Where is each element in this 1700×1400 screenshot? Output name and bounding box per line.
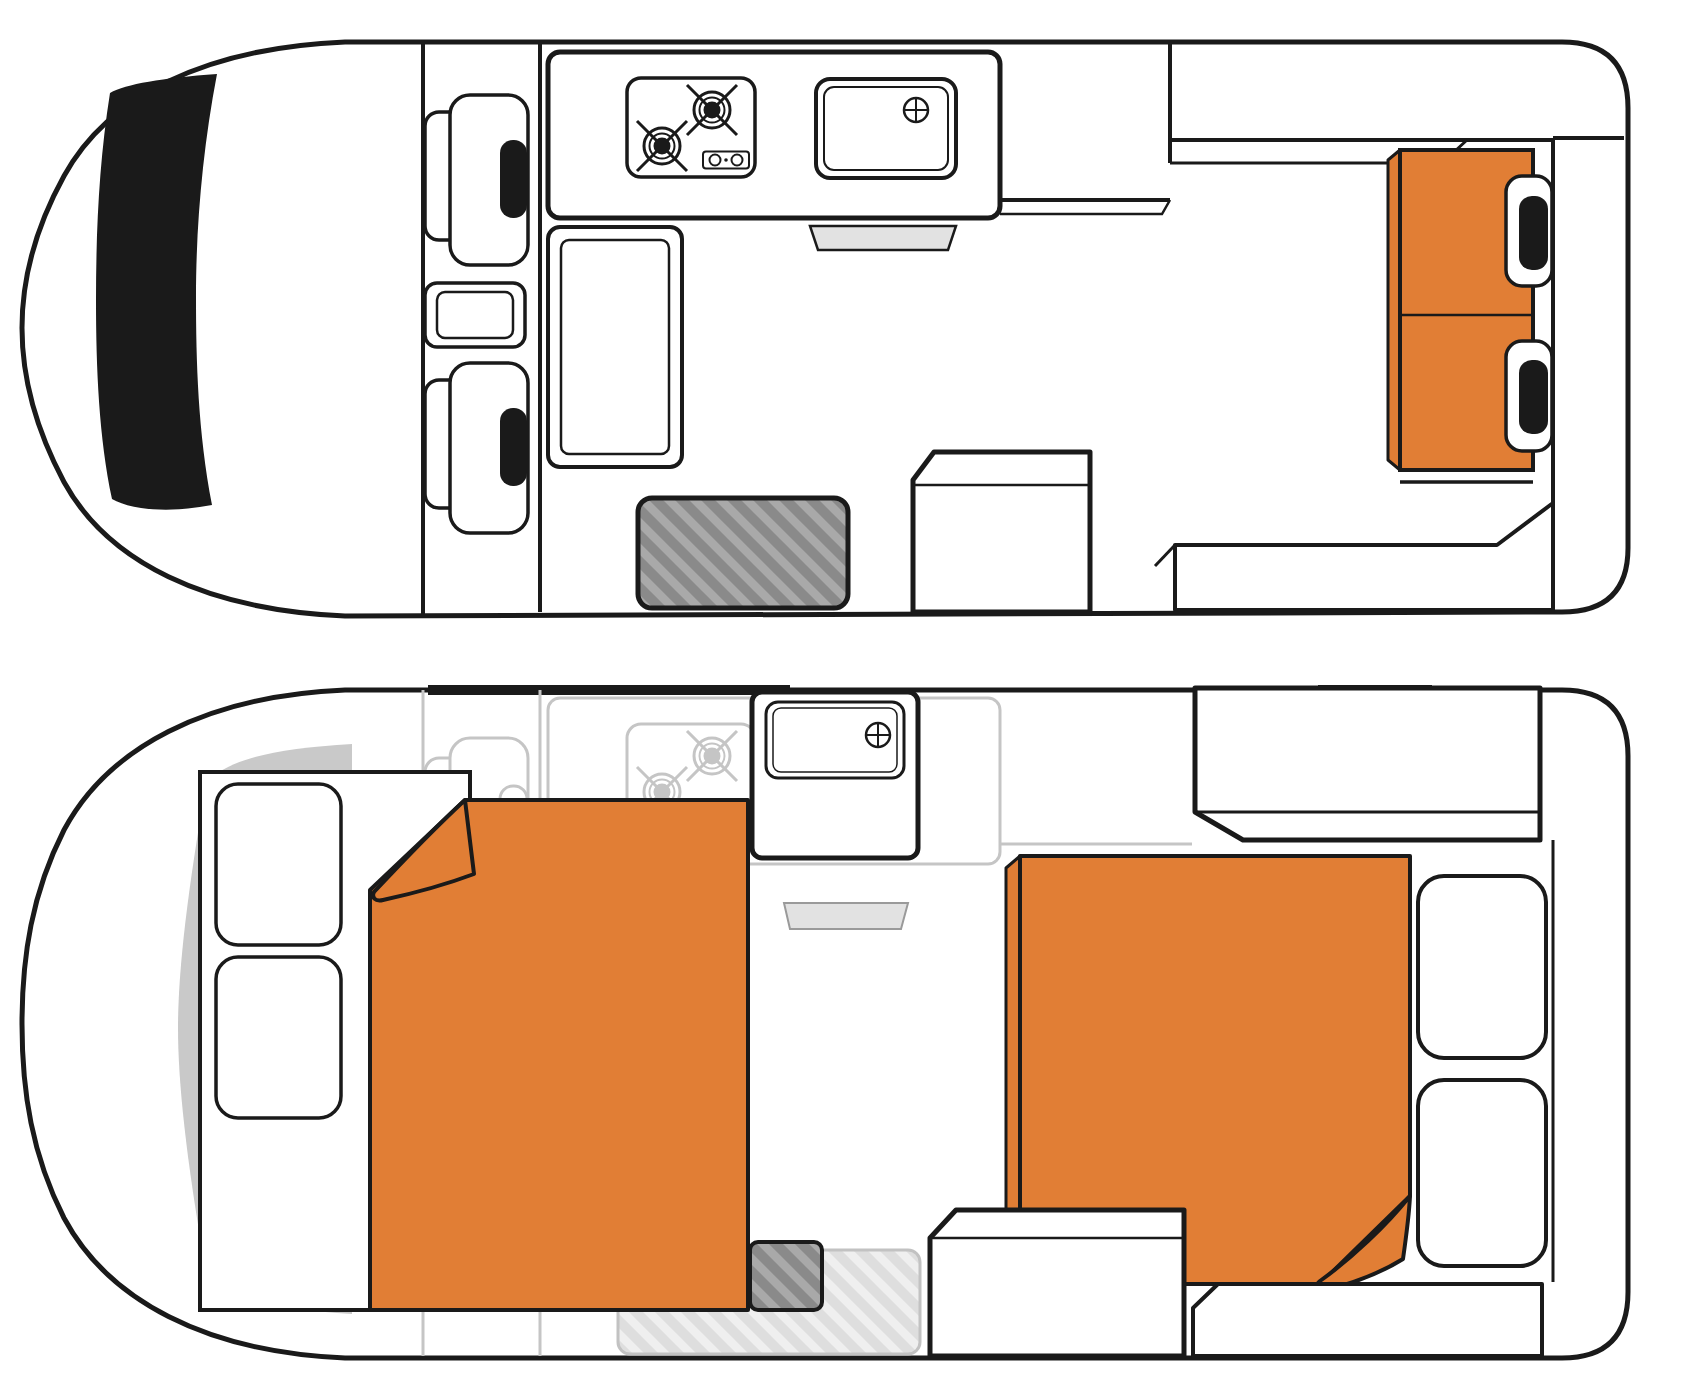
night-floorplan bbox=[22, 685, 1628, 1358]
campervan-floorplans bbox=[0, 0, 1700, 1400]
wardrobe-cabinet bbox=[548, 227, 682, 467]
stove-burner-icon bbox=[687, 85, 737, 135]
pillow bbox=[216, 957, 341, 1118]
sink-unit bbox=[752, 692, 918, 858]
cutlery-tray bbox=[810, 226, 956, 250]
kitchen-unit bbox=[548, 52, 1000, 218]
rear-seat-cushion bbox=[1418, 876, 1546, 1058]
sink bbox=[816, 79, 956, 178]
day-floorplan bbox=[22, 42, 1628, 616]
drain-icon bbox=[866, 723, 890, 747]
entry-step bbox=[638, 498, 848, 608]
front-double-bed bbox=[370, 800, 748, 1310]
entry-step bbox=[750, 1242, 822, 1310]
rear-seat-cushion bbox=[1418, 1080, 1546, 1266]
wall-section bbox=[428, 685, 790, 695]
bench-headrest bbox=[1519, 360, 1548, 434]
passenger-seat bbox=[425, 363, 528, 533]
cutlery-tray bbox=[784, 903, 908, 929]
rear-overhead-cabinet bbox=[1195, 688, 1540, 840]
drain-icon bbox=[904, 98, 928, 122]
passenger-headrest bbox=[500, 408, 527, 486]
driver-headrest bbox=[500, 140, 527, 218]
stove-burner-icon bbox=[637, 121, 687, 171]
rear-bench-seat bbox=[1388, 150, 1552, 482]
dinette-table bbox=[913, 452, 1090, 612]
storage-box bbox=[930, 1210, 1184, 1356]
floorplan-canvas bbox=[0, 0, 1700, 1400]
driver-seat bbox=[425, 95, 528, 265]
center-console bbox=[425, 283, 525, 347]
stove-controls bbox=[703, 152, 749, 169]
bench-headrest bbox=[1519, 196, 1548, 270]
rear-storage-bench bbox=[1193, 1284, 1542, 1356]
pillow bbox=[216, 784, 341, 945]
